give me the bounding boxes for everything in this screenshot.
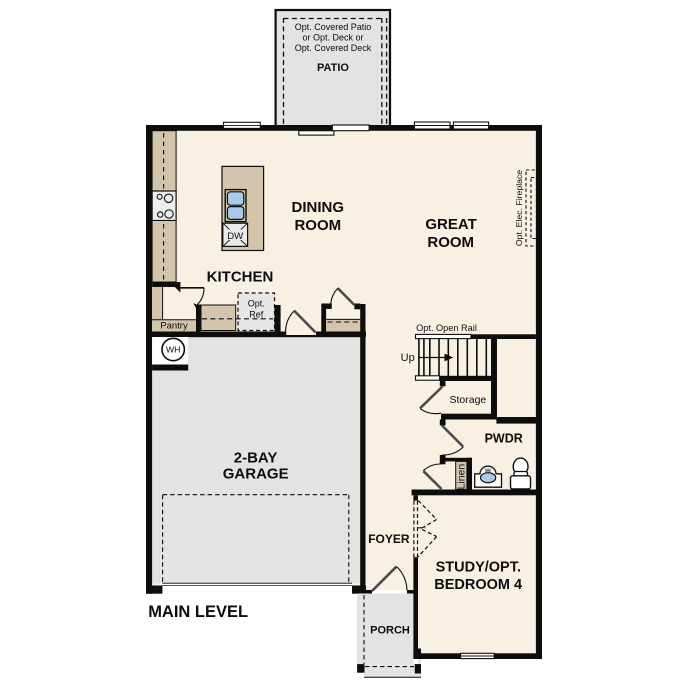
svg-text:Storage: Storage [450,394,487,406]
svg-text:ROOM: ROOM [294,217,341,234]
svg-text:2-BAY: 2-BAY [234,449,278,466]
svg-text:STUDY/OPT.: STUDY/OPT. [436,560,521,576]
svg-text:Linen: Linen [456,464,468,490]
svg-text:PATIO: PATIO [317,62,349,74]
svg-text:FOYER: FOYER [368,532,410,546]
svg-text:Opt. Covered Patio: Opt. Covered Patio [295,22,372,32]
svg-text:Pantry: Pantry [160,321,188,332]
svg-text:or Opt. Deck or: or Opt. Deck or [302,33,363,43]
svg-text:GARAGE: GARAGE [223,466,289,483]
svg-text:BEDROOM 4: BEDROOM 4 [434,577,522,593]
svg-text:Opt. Covered Deck: Opt. Covered Deck [295,43,372,53]
svg-text:DINING: DINING [292,199,345,216]
svg-text:Up: Up [401,352,415,364]
svg-text:WH: WH [166,345,180,355]
svg-text:GREAT: GREAT [425,216,476,233]
svg-text:Opt. Elec. Fireplace: Opt. Elec. Fireplace [514,170,524,246]
svg-text:Opt.: Opt. [248,299,265,309]
svg-text:DW: DW [227,231,244,242]
svg-text:MAIN LEVEL: MAIN LEVEL [148,603,248,621]
svg-text:PWDR: PWDR [485,432,523,446]
svg-text:ROOM: ROOM [427,234,474,251]
svg-text:Ref: Ref [249,310,264,320]
svg-text:Opt. Open Rail: Opt. Open Rail [416,323,477,333]
svg-text:KITCHEN: KITCHEN [207,269,274,286]
svg-text:PORCH: PORCH [370,624,410,636]
